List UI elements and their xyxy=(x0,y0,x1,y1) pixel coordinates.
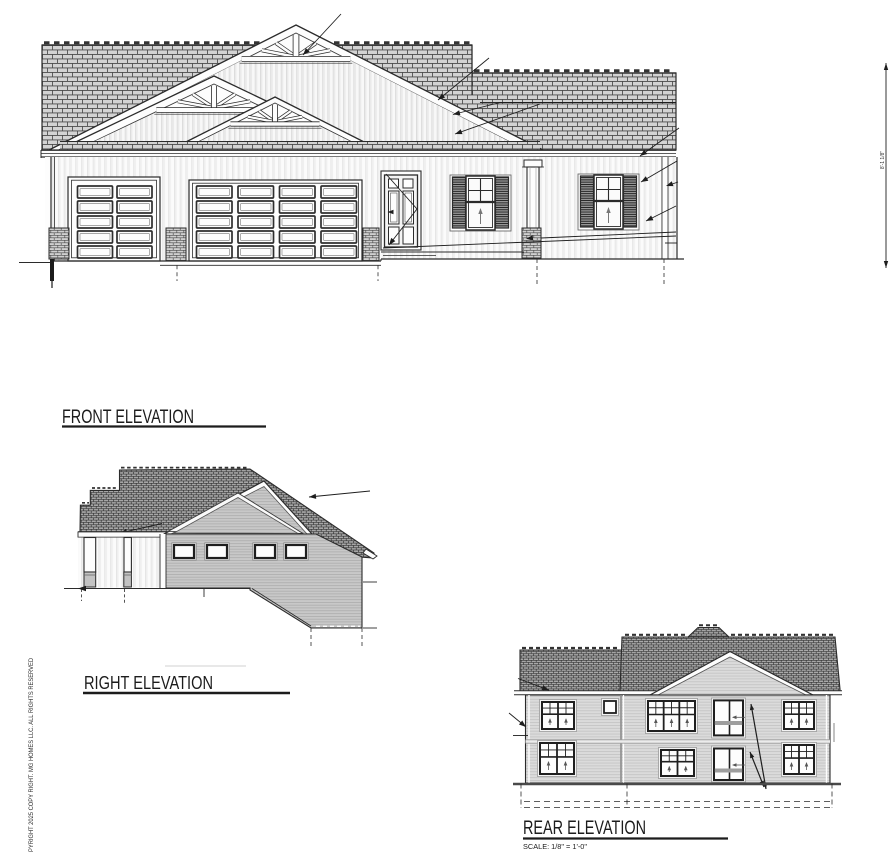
svg-text:FRONT ELEVATION: FRONT ELEVATION xyxy=(62,406,194,428)
svg-text:REAR ELEVATION: REAR ELEVATION xyxy=(523,817,646,839)
svg-text:RIGHT ELEVATION: RIGHT ELEVATION xyxy=(84,673,213,693)
svg-text:SCALE: 1/8" = 1'-0": SCALE: 1/8" = 1'-0" xyxy=(523,842,587,851)
svg-text:8'-1 1/8": 8'-1 1/8" xyxy=(880,151,886,170)
svg-text:PYRIGHT 2025 COPY RIGHT. MG HO: PYRIGHT 2025 COPY RIGHT. MG HOMES LLC. A… xyxy=(29,657,35,852)
